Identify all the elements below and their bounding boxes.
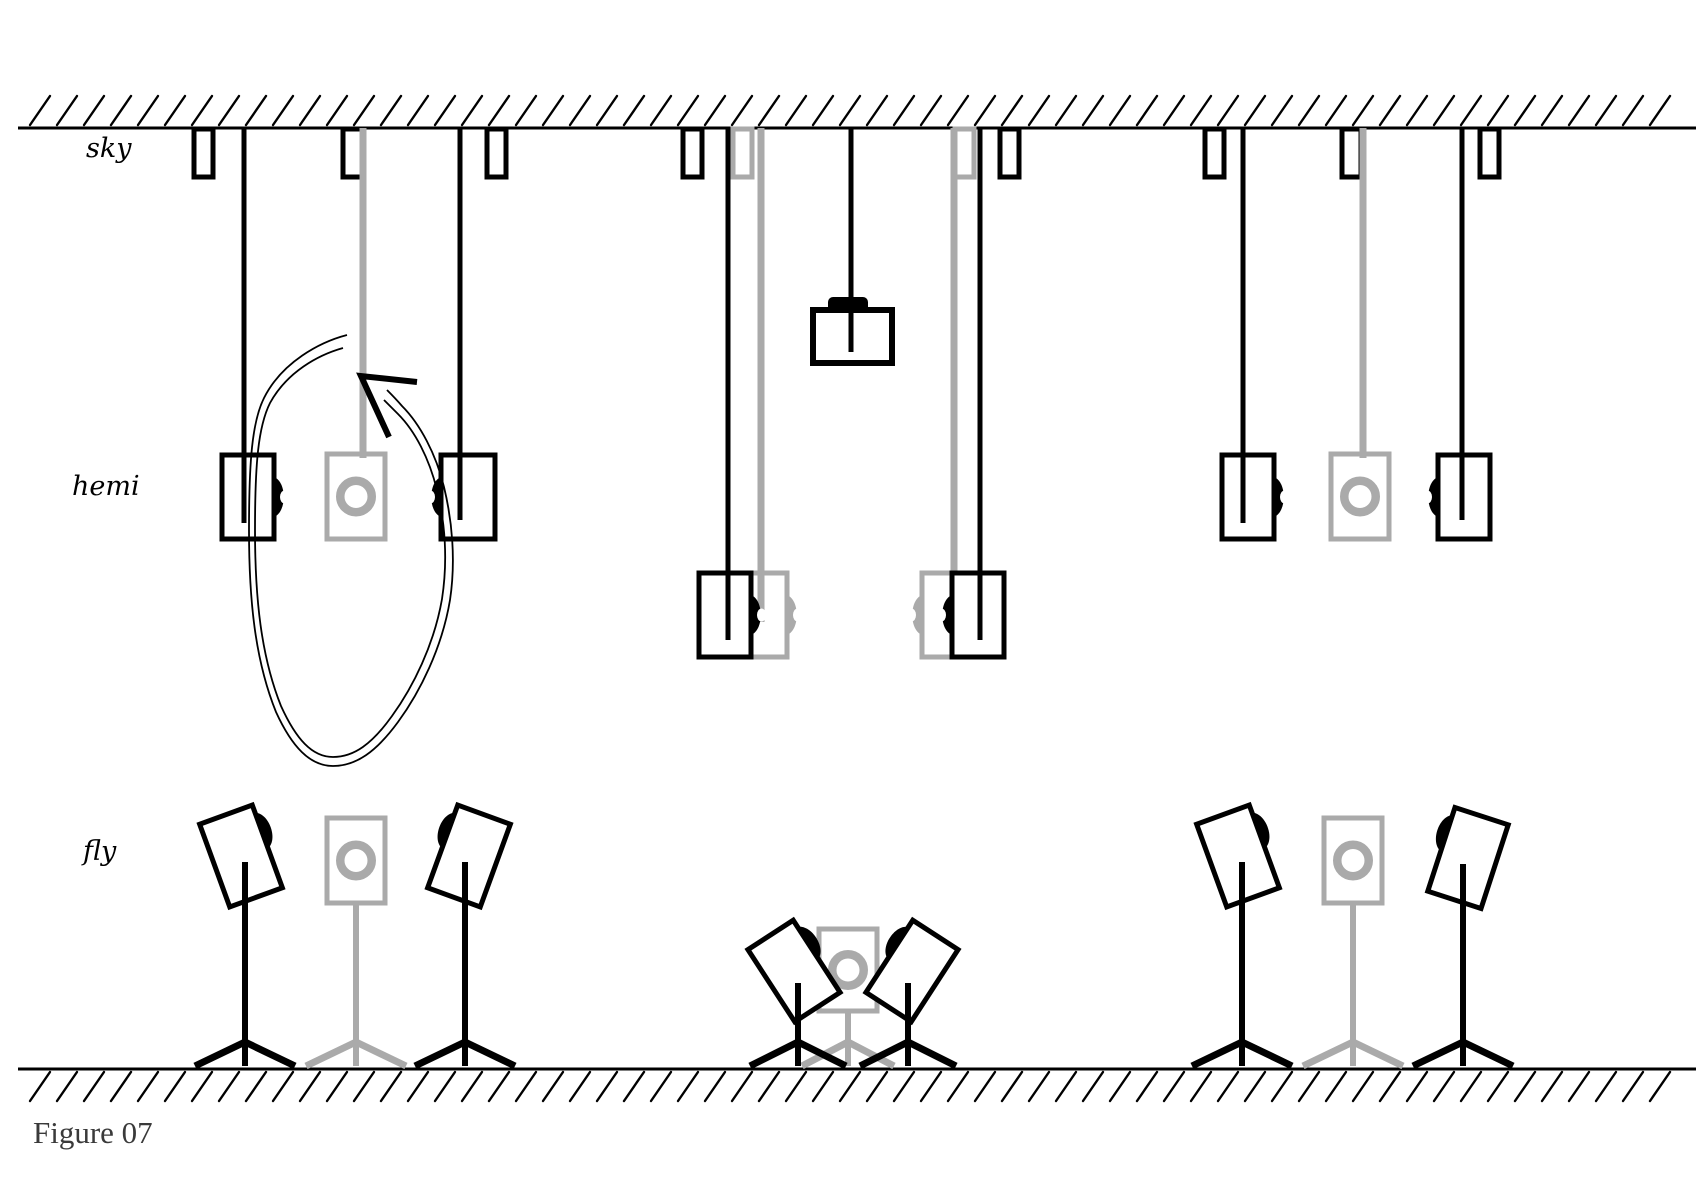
floor-hatch-mark xyxy=(1380,1072,1400,1101)
floor-hatch-mark xyxy=(462,1072,482,1101)
ceiling-hatch-mark xyxy=(408,96,428,125)
floor-hatch-mark xyxy=(1029,1072,1049,1101)
floor-hatch-mark xyxy=(1272,1072,1292,1101)
row-label-hemi: hemi xyxy=(72,471,140,502)
floor-hatch-mark xyxy=(1299,1072,1319,1101)
driver-notch xyxy=(1280,491,1289,504)
stand-leg xyxy=(415,1042,465,1066)
ceiling-hatch-mark xyxy=(381,96,401,125)
ceiling-hatch-mark xyxy=(705,96,725,125)
stand-leg xyxy=(306,1042,356,1066)
ceiling-hatch-mark xyxy=(219,96,239,125)
stand-leg xyxy=(1192,1042,1242,1066)
floor-hatch-mark xyxy=(1326,1072,1346,1101)
stand-leg xyxy=(1303,1042,1353,1066)
ceiling-hatch-mark xyxy=(489,96,509,125)
stand-leg xyxy=(1413,1042,1463,1066)
ceiling-hatch-mark xyxy=(30,96,50,125)
floor-hatch-mark xyxy=(1083,1072,1103,1101)
speaker-cabinet-side xyxy=(699,573,751,657)
floor-hatch-mark xyxy=(1515,1072,1535,1101)
speaker-cabinet-side xyxy=(1197,805,1280,907)
speaker-rigging-diagram xyxy=(0,0,1700,1202)
speaker-cabinet-back xyxy=(327,454,385,539)
ceiling-hatch-mark xyxy=(759,96,779,125)
floor-hatch-mark xyxy=(435,1072,455,1101)
ceiling-hatch-mark xyxy=(1407,96,1427,125)
floor-hatch-mark xyxy=(1488,1072,1508,1101)
ceiling-hatch-mark xyxy=(624,96,644,125)
speaker-cabinet-back xyxy=(1324,818,1382,903)
floor-hatch-mark xyxy=(705,1072,725,1101)
floor-hatch-mark xyxy=(759,1072,779,1101)
floor-hatch-mark xyxy=(57,1072,77,1101)
stand-leg xyxy=(1242,1042,1292,1066)
speaker-cabinet-side xyxy=(866,920,958,1022)
driver-notch xyxy=(1423,491,1432,504)
floor-hatch-mark xyxy=(30,1072,50,1101)
floor-hatch-mark xyxy=(1218,1072,1238,1101)
ceiling-hatch-mark xyxy=(1029,96,1049,125)
ceiling-hatch-mark xyxy=(651,96,671,125)
floor-hatch-mark xyxy=(894,1072,914,1101)
ceiling-hatch-mark xyxy=(462,96,482,125)
ceiling-hatch-mark xyxy=(165,96,185,125)
ceiling-hatch-mark xyxy=(1596,96,1616,125)
floor-hatch-mark xyxy=(597,1072,617,1101)
floor-hatch-mark xyxy=(1245,1072,1265,1101)
ceiling-hatch-mark xyxy=(1461,96,1481,125)
speaker-cabinet-back xyxy=(1331,454,1389,539)
floor-hatch-mark xyxy=(1407,1072,1427,1101)
ceiling-hatch-mark xyxy=(435,96,455,125)
stand-leg xyxy=(245,1042,295,1066)
ceiling-hatch-mark xyxy=(894,96,914,125)
ceiling-hatch-mark xyxy=(921,96,941,125)
rotation-loop-inner xyxy=(255,348,445,757)
floor-hatch-mark xyxy=(543,1072,563,1101)
driver-notch xyxy=(793,609,802,622)
ceiling-hatch-mark xyxy=(1353,96,1373,125)
floor-hatch-mark xyxy=(1650,1072,1670,1101)
ceiling-hatch-mark xyxy=(1326,96,1346,125)
ceiling-hatch-mark xyxy=(1272,96,1292,125)
ceiling-hatch-mark xyxy=(1380,96,1400,125)
ceiling-mount-bracket xyxy=(733,129,752,177)
floor-hatch-mark xyxy=(732,1072,752,1101)
floor-hatch-mark xyxy=(1002,1072,1022,1101)
ceiling-hatch-mark xyxy=(57,96,77,125)
ceiling-mount-bracket xyxy=(955,129,974,177)
speaker-cabinet-back xyxy=(327,818,385,903)
ceiling-hatch-mark xyxy=(678,96,698,125)
ceiling-mount-bracket xyxy=(487,129,506,177)
floor-hatch-mark xyxy=(570,1072,590,1101)
floor-hatch-mark xyxy=(327,1072,347,1101)
row-label-sky: sky xyxy=(86,133,131,164)
floor-hatch-mark xyxy=(273,1072,293,1101)
stand-leg xyxy=(908,1042,956,1066)
floor-hatch-mark xyxy=(354,1072,374,1101)
floor-hatch-mark xyxy=(408,1072,428,1101)
ceiling-hatch-mark xyxy=(516,96,536,125)
ceiling-hatch-mark xyxy=(1002,96,1022,125)
ceiling-hatch-mark xyxy=(948,96,968,125)
row-label-fly: fly xyxy=(83,836,116,867)
ceiling-hatch-mark xyxy=(1542,96,1562,125)
ceiling-hatch-mark xyxy=(1623,96,1643,125)
floor-hatch-mark xyxy=(1056,1072,1076,1101)
floor-hatch-mark xyxy=(624,1072,644,1101)
floor-hatch-mark xyxy=(840,1072,860,1101)
ceiling-hatch-mark xyxy=(1299,96,1319,125)
ceiling-hatch-mark xyxy=(138,96,158,125)
floor-hatch-mark xyxy=(678,1072,698,1101)
figure-page: sky hemi fly Figure 07 xyxy=(0,0,1700,1202)
floor-hatch-mark xyxy=(786,1072,806,1101)
floor-hatch-mark xyxy=(1137,1072,1157,1101)
floor-hatch-mark xyxy=(948,1072,968,1101)
speaker-cabinet-side xyxy=(1222,455,1274,539)
floor-hatch-mark xyxy=(1191,1072,1211,1101)
floor-hatch-mark xyxy=(1164,1072,1184,1101)
floor-hatch-mark xyxy=(975,1072,995,1101)
floor-hatch-mark xyxy=(1434,1072,1454,1101)
driver-notch xyxy=(280,491,289,504)
ceiling-hatch-mark xyxy=(246,96,266,125)
ceiling-hatch-mark xyxy=(354,96,374,125)
floor-hatch-mark xyxy=(489,1072,509,1101)
ceiling-hatch-mark xyxy=(111,96,131,125)
driver-notch xyxy=(757,609,766,622)
ceiling-hatch-mark xyxy=(1569,96,1589,125)
floor-hatch-mark xyxy=(1110,1072,1130,1101)
ceiling-hatch-mark xyxy=(597,96,617,125)
ceiling-hatch-mark xyxy=(867,96,887,125)
ceiling-hatch-mark xyxy=(1515,96,1535,125)
ceiling-mount-bracket xyxy=(194,129,213,177)
floor-hatch-mark xyxy=(1461,1072,1481,1101)
floor-hatch-mark xyxy=(138,1072,158,1101)
ceiling-mount-bracket xyxy=(1205,129,1224,177)
floor-hatch-mark xyxy=(1596,1072,1616,1101)
stand-leg xyxy=(465,1042,515,1066)
floor-hatch-mark xyxy=(84,1072,104,1101)
speaker-cabinet-side xyxy=(200,805,283,907)
ceiling-hatch-mark xyxy=(1488,96,1508,125)
ceiling-hatch-mark xyxy=(813,96,833,125)
floor-hatch-mark xyxy=(300,1072,320,1101)
ceiling-hatch-mark xyxy=(1191,96,1211,125)
ceiling-hatch-mark xyxy=(84,96,104,125)
floor-hatch-mark xyxy=(867,1072,887,1101)
ceiling-hatch-mark xyxy=(1218,96,1238,125)
figure-caption: Figure 07 xyxy=(33,1115,153,1151)
ceiling-hatch-mark xyxy=(327,96,347,125)
floor-hatch-mark xyxy=(165,1072,185,1101)
ceiling-hatch-mark xyxy=(840,96,860,125)
stand-leg xyxy=(750,1042,798,1066)
floor-hatch-mark xyxy=(921,1072,941,1101)
ceiling-hatch-mark xyxy=(732,96,752,125)
speaker-cabinet-side xyxy=(428,805,511,907)
subwoofer-bracket xyxy=(828,297,868,312)
ceiling-mount-bracket xyxy=(343,129,362,177)
ceiling-hatch-mark xyxy=(1137,96,1157,125)
ceiling-hatch-mark xyxy=(1056,96,1076,125)
floor-hatch-mark xyxy=(381,1072,401,1101)
ceiling-hatch-mark xyxy=(1650,96,1670,125)
ceiling-hatch-mark xyxy=(1110,96,1130,125)
speaker-cabinet-side xyxy=(441,455,495,539)
speaker-cabinet-side xyxy=(222,455,274,539)
floor-hatch-mark xyxy=(219,1072,239,1101)
ceiling-mount-bracket xyxy=(1480,129,1499,177)
ceiling-hatch-mark xyxy=(1245,96,1265,125)
floor-hatch-mark xyxy=(1542,1072,1562,1101)
floor-hatch-mark xyxy=(1569,1072,1589,1101)
ceiling-mount-bracket xyxy=(1000,129,1019,177)
driver-notch xyxy=(937,609,946,622)
ceiling-mount-bracket xyxy=(1342,129,1361,177)
floor-hatch-mark xyxy=(246,1072,266,1101)
stand-leg xyxy=(195,1042,245,1066)
speaker-cabinet-side xyxy=(1428,808,1508,909)
ceiling-hatch-mark xyxy=(1434,96,1454,125)
rotation-arrowhead xyxy=(361,376,417,437)
floor-hatch-mark xyxy=(1623,1072,1643,1101)
floor-hatch-mark xyxy=(651,1072,671,1101)
floor-hatch-mark xyxy=(1353,1072,1373,1101)
stand-leg xyxy=(1463,1042,1513,1066)
floor-hatch-mark xyxy=(111,1072,131,1101)
driver-notch xyxy=(426,491,435,504)
ceiling-hatch-mark xyxy=(192,96,212,125)
floor-hatch-mark xyxy=(516,1072,536,1101)
floor-hatch-mark xyxy=(192,1072,212,1101)
stand-leg xyxy=(356,1042,406,1066)
ceiling-mount-bracket xyxy=(683,129,702,177)
ceiling-hatch-mark xyxy=(543,96,563,125)
ceiling-hatch-mark xyxy=(1083,96,1103,125)
ceiling-hatch-mark xyxy=(1164,96,1184,125)
ceiling-hatch-mark xyxy=(300,96,320,125)
ceiling-hatch-mark xyxy=(570,96,590,125)
ceiling-hatch-mark xyxy=(975,96,995,125)
ceiling-hatch-mark xyxy=(273,96,293,125)
ceiling-hatch-mark xyxy=(786,96,806,125)
floor-hatch-mark xyxy=(813,1072,833,1101)
stand-leg xyxy=(1353,1042,1403,1066)
driver-notch xyxy=(907,609,916,622)
